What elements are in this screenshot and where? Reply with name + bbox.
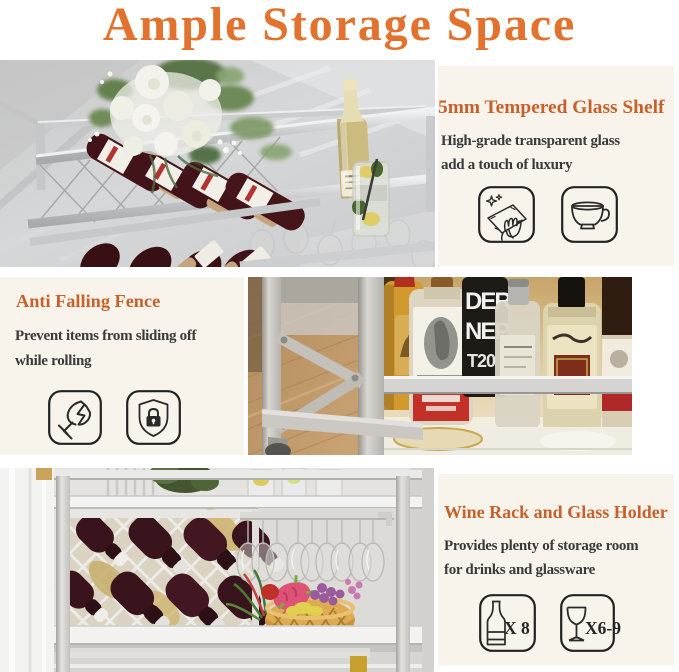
svg-text:T20: T20: [467, 351, 496, 371]
